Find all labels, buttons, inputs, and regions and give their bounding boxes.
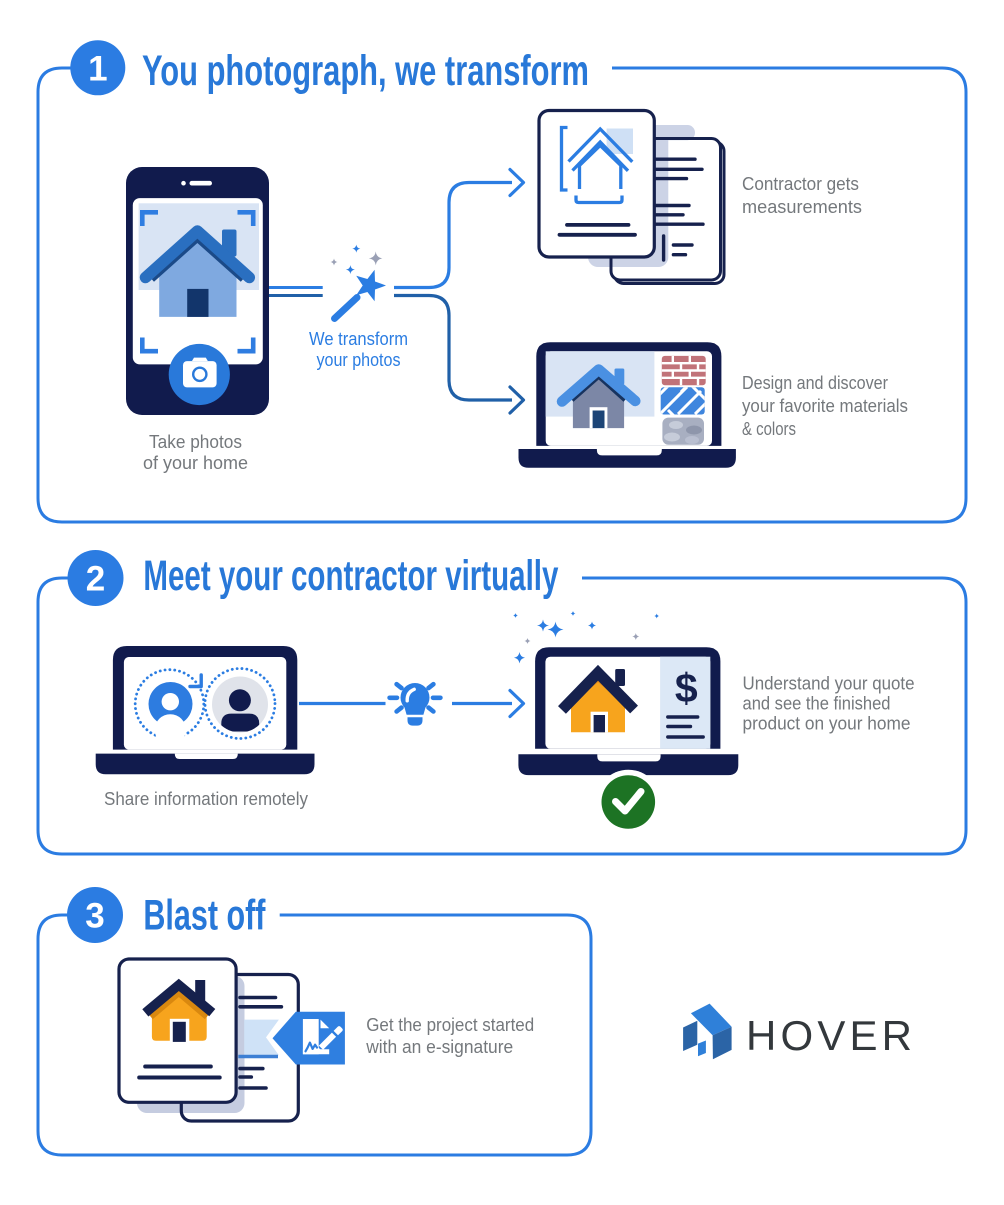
svg-text:measurements: measurements — [742, 197, 862, 217]
svg-text:2: 2 — [86, 560, 105, 599]
svg-text:Contractor gets: Contractor gets — [742, 174, 859, 194]
svg-text:Get the project started: Get the project started — [366, 1015, 534, 1035]
svg-text:Blast off: Blast off — [143, 892, 265, 940]
svg-text:product on your home: product on your home — [743, 714, 911, 734]
svg-text:and see the finished: and see the finished — [743, 694, 891, 714]
svg-text:We transform: We transform — [309, 329, 408, 349]
svg-text:Share information remotely: Share information remotely — [104, 789, 308, 809]
svg-text:Take photos: Take photos — [149, 432, 242, 452]
svg-text:with an e-signature: with an e-signature — [365, 1037, 513, 1057]
svg-text:$: $ — [675, 665, 698, 711]
svg-text:1: 1 — [88, 49, 107, 88]
svg-text:Meet your contractor virtually: Meet your contractor virtually — [143, 552, 558, 600]
svg-text:Understand your quote: Understand your quote — [743, 674, 915, 694]
svg-text:of your home: of your home — [143, 453, 248, 473]
svg-text:& colors: & colors — [742, 419, 796, 439]
svg-text:your favorite materials: your favorite materials — [742, 396, 908, 416]
svg-text:3: 3 — [85, 897, 104, 936]
svg-text:You photograph, we transform: You photograph, we transform — [142, 47, 589, 95]
svg-text:HOVER: HOVER — [746, 1012, 912, 1059]
svg-text:your photos: your photos — [317, 350, 401, 370]
svg-text:Design and discover: Design and discover — [742, 373, 888, 393]
